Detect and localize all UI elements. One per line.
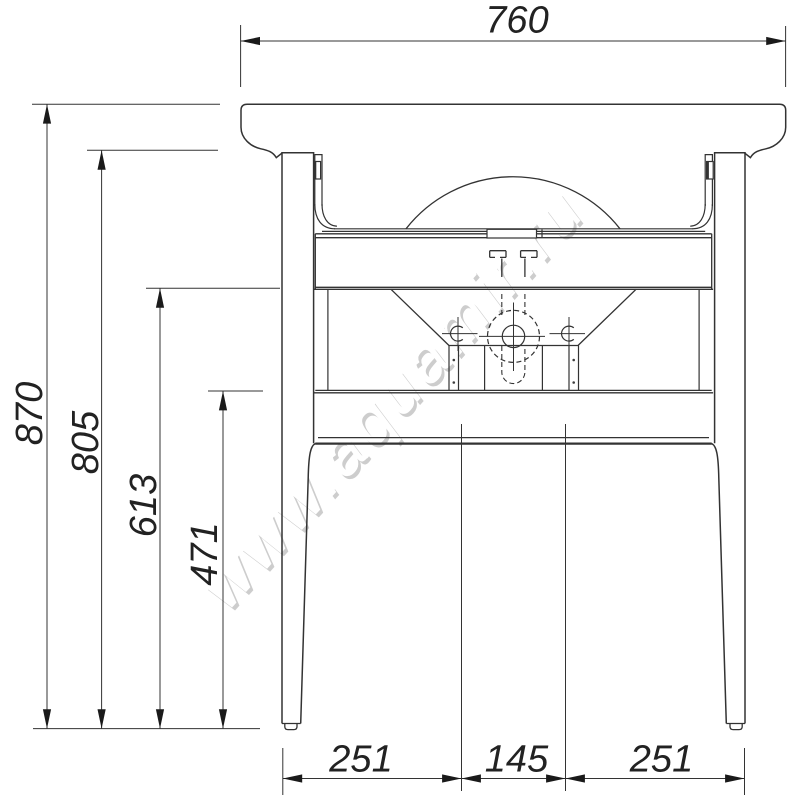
svg-text:145: 145: [485, 739, 549, 781]
svg-text:www.aquamir.ru: www.aquamir.ru: [185, 172, 600, 622]
svg-text:870: 870: [9, 382, 51, 445]
svg-text:251: 251: [328, 739, 392, 781]
svg-text:251: 251: [629, 739, 693, 781]
svg-text:613: 613: [123, 474, 165, 537]
svg-text:471: 471: [184, 522, 226, 585]
svg-text:805: 805: [65, 410, 107, 474]
svg-text:760: 760: [485, 0, 548, 42]
